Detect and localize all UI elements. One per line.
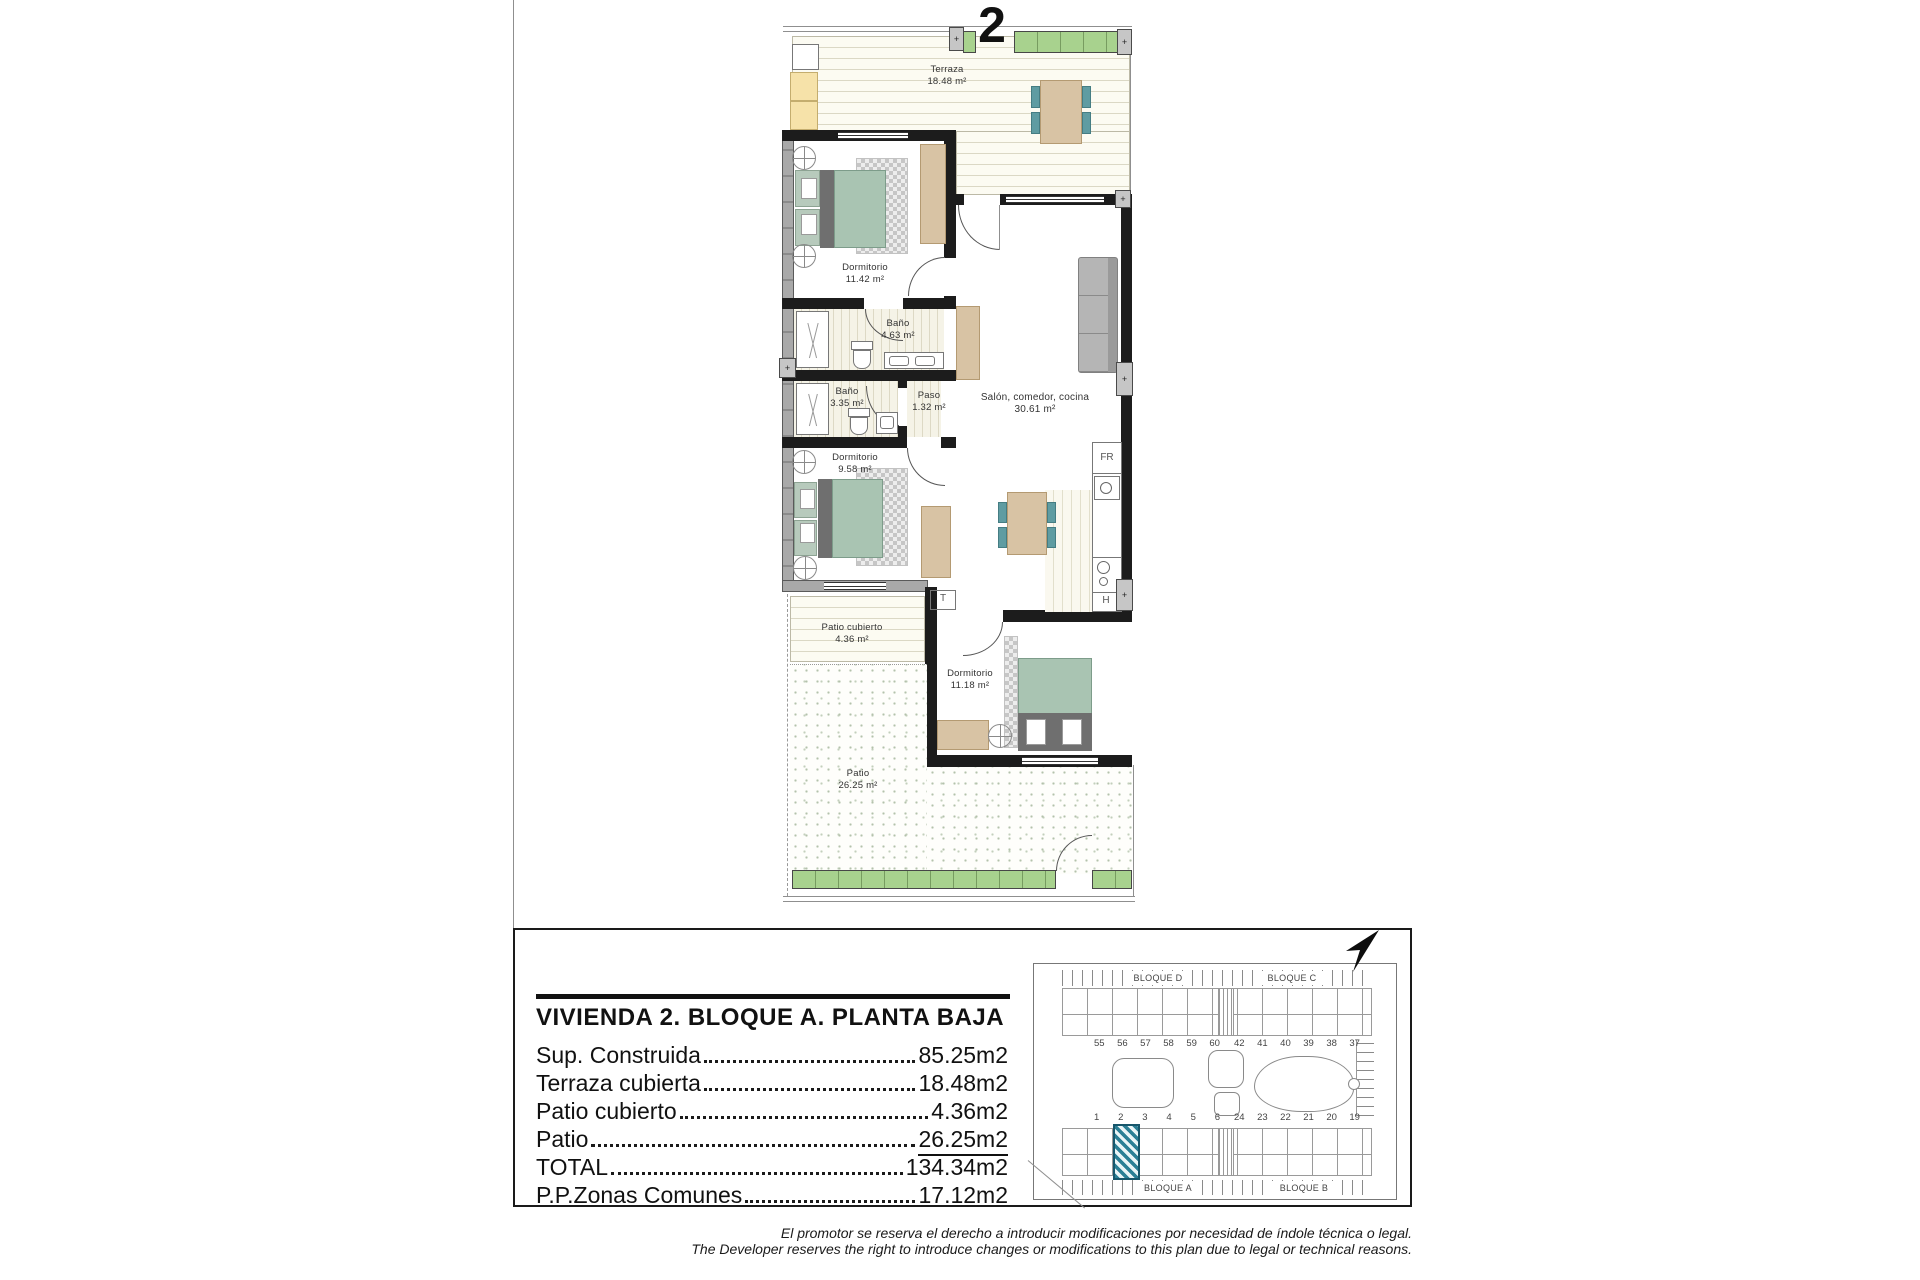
unit-number: 1: [1094, 1112, 1099, 1123]
stair-core: [1218, 1128, 1234, 1176]
block-label: BLOQUE D: [1126, 971, 1190, 985]
door-arc: [963, 622, 1003, 656]
room-name: Terraza: [901, 64, 993, 76]
unit-numbers: 1 2 3 4 5 6: [1094, 1112, 1220, 1123]
chair: [1047, 527, 1056, 548]
toilet: [850, 417, 868, 435]
room-name: Dormitorio: [925, 668, 1015, 680]
dot-leader: [680, 1116, 929, 1119]
sink-basin: [880, 416, 894, 429]
chair: [1082, 86, 1091, 108]
door-arc: [907, 448, 945, 486]
wall: [903, 298, 956, 309]
bed-headboard: [820, 170, 834, 248]
bed-headboard: [818, 479, 832, 558]
room-name: Salón, comedor, cocina: [949, 392, 1121, 404]
pillow: [800, 489, 815, 509]
spa: [1208, 1050, 1244, 1088]
unit-number: 42: [1234, 1038, 1245, 1049]
chair: [1031, 86, 1040, 108]
chair: [1047, 502, 1056, 523]
window: [1006, 196, 1104, 203]
patio-ground: [927, 767, 1132, 874]
room-area: 9.58 m²: [813, 464, 897, 476]
planter: [790, 101, 818, 130]
window: [824, 582, 886, 590]
plan-title: VIVIENDA 2. BLOQUE A. PLANTA BAJA: [536, 1004, 1014, 1032]
pillow: [1026, 719, 1046, 745]
door-arc: [908, 257, 945, 296]
unit-number: 6: [1215, 1112, 1220, 1123]
burner: [1097, 561, 1110, 574]
pool: [1254, 1056, 1354, 1112]
table-row: Terraza cubierta 18.48m2: [536, 1070, 1008, 1098]
room-label-bano1: Baño 4.63 m²: [863, 318, 933, 341]
dot-leader: [704, 1060, 916, 1063]
shower-glass-line: [809, 323, 819, 358]
unit-number: 5: [1191, 1112, 1196, 1123]
block-label: BLOQUE A: [1136, 1181, 1200, 1195]
wall: [941, 437, 956, 448]
row-label: P.P.Zonas Comunes: [536, 1182, 742, 1209]
row-label: Terraza cubierta: [536, 1070, 701, 1097]
wall-post: +: [779, 358, 796, 378]
row-value: 26.25m2: [918, 1126, 1008, 1156]
unit-numbers: 42 41 40 39 38 37: [1234, 1038, 1360, 1049]
unit-number: 4: [1166, 1112, 1171, 1123]
building-strip: [1062, 988, 1372, 1036]
wall-post: +: [1116, 362, 1133, 396]
room-area: 4.36 m²: [806, 634, 898, 646]
unit-number: 56: [1117, 1038, 1128, 1049]
unit-number: 37: [1349, 1038, 1360, 1049]
room-name: Baño: [812, 386, 882, 398]
room-label-dormitorio3: Dormitorio 11.18 m²: [925, 668, 1015, 691]
bed: [1018, 658, 1092, 714]
unit-numbers: 24 23 22 21 20 19: [1234, 1112, 1360, 1123]
wall: [898, 381, 907, 388]
wardrobe: [921, 506, 951, 578]
block-label: BLOQUE B: [1272, 1181, 1336, 1195]
room-area: 11.18 m²: [925, 680, 1015, 692]
wardrobe: [920, 144, 946, 244]
disclaimer-line-en: The Developer reserves the right to intr…: [592, 1242, 1412, 1258]
garage-row: [1062, 970, 1372, 986]
dot-leader: [704, 1088, 916, 1091]
wall: [782, 437, 905, 448]
door-leaf: [999, 205, 1000, 250]
unit-number: 20: [1326, 1112, 1337, 1123]
unit-number: 58: [1163, 1038, 1174, 1049]
row-value: 18.48m2: [918, 1070, 1008, 1097]
boundary-dashed-line: [787, 594, 788, 896]
row-label: Patio cubierto: [536, 1098, 677, 1125]
wall: [782, 298, 864, 309]
sink: [889, 356, 909, 366]
kitchen-sink-basin: [1100, 482, 1112, 494]
toilet-cistern: [848, 408, 870, 417]
unit-number: 2: [966, 0, 1018, 54]
north-arrow-icon: [1340, 928, 1382, 974]
room-area: 4.63 m²: [863, 330, 933, 342]
sink: [915, 356, 935, 366]
room-label-dormitorio1: Dormitorio 11.42 m²: [820, 262, 910, 285]
unit-number: 41: [1257, 1038, 1268, 1049]
mat: [937, 720, 989, 750]
unit-number: 39: [1303, 1038, 1314, 1049]
table-row: Patio 26.25m2: [536, 1126, 1008, 1154]
frame-left-line: [513, 0, 514, 928]
dot-leader: [611, 1172, 903, 1175]
unit-number: 57: [1140, 1038, 1151, 1049]
unit-number: 23: [1257, 1112, 1268, 1123]
pillow: [1062, 719, 1082, 745]
room-label-patio: Patio 26.25 m²: [818, 768, 898, 791]
chair: [998, 502, 1007, 523]
unit-number: 2: [1118, 1112, 1123, 1123]
unit-number: 3: [1142, 1112, 1147, 1123]
row-value: 17.12m2: [918, 1182, 1008, 1209]
chair: [1082, 112, 1091, 134]
ceiling-light-icon: [792, 146, 816, 170]
room-area: 18.48 m²: [901, 76, 993, 88]
disclaimer: El promotor se reserva el derecho a intr…: [592, 1226, 1412, 1257]
row-value: 134.34m2: [906, 1154, 1008, 1181]
pillow: [800, 523, 815, 543]
pillow: [801, 214, 817, 235]
toilet-cistern: [851, 341, 873, 350]
unit-number: 60: [1209, 1038, 1220, 1049]
row-value: 4.36m2: [931, 1098, 1008, 1125]
room-area: 11.42 m²: [820, 274, 910, 286]
ceiling-light-icon: [988, 724, 1012, 748]
dot-leader: [745, 1200, 915, 1203]
hedge: [1092, 870, 1132, 889]
row-label: Sup. Construida: [536, 1042, 701, 1069]
toilet: [853, 350, 871, 369]
bed: [832, 479, 883, 558]
room-name: Patio: [818, 768, 898, 780]
wardrobe: [956, 306, 980, 380]
dot-leader: [591, 1144, 915, 1147]
fridge-label: FR: [1092, 452, 1122, 463]
table-row: Patio cubierto 4.36m2: [536, 1098, 1008, 1126]
boundary-line: [783, 31, 953, 32]
row-label: Patio: [536, 1126, 588, 1153]
title-rule: [536, 994, 1010, 999]
floor-plan-page: 2 + + Terraza 18.48 m² + + + +: [0, 0, 1920, 1280]
unit-number: 21: [1303, 1112, 1314, 1123]
parking-row: [1356, 1040, 1374, 1116]
table-row: Sup. Construida 85.25m2: [536, 1042, 1008, 1070]
hob-label: H: [1092, 595, 1120, 606]
unit-number: 59: [1186, 1038, 1197, 1049]
planter: [790, 72, 818, 101]
room-name: Baño: [863, 318, 933, 330]
burner: [1099, 577, 1108, 586]
table-row: P.P.Zonas Comunes 17.12m2: [536, 1182, 1008, 1210]
sofa: [1078, 257, 1118, 373]
room-name: Dormitorio: [820, 262, 910, 274]
door-arc: [958, 205, 1000, 250]
table-row: TOTAL 134.34m2: [536, 1154, 1008, 1182]
room-name: Dormitorio: [813, 452, 897, 464]
room-area: 30.61 m²: [949, 404, 1121, 416]
shower-glass-line: [807, 323, 817, 358]
boundary-line: [1133, 765, 1134, 897]
unit-number: 40: [1280, 1038, 1291, 1049]
room-area: 3.35 m²: [812, 398, 882, 410]
room-label-salon: Salón, comedor, cocina 30.61 m²: [949, 392, 1121, 415]
unit-number: 24: [1234, 1112, 1245, 1123]
room-label-terraza: Terraza 18.48 m²: [901, 64, 993, 87]
unit-number: 55: [1094, 1038, 1105, 1049]
site-plan: BLOQUE D BLOQUE C 55 56 57 58 59 60 42 4…: [1033, 963, 1397, 1200]
terrace-dining-table: [1040, 80, 1082, 144]
pool: [1112, 1058, 1174, 1108]
boundary-line: [783, 896, 1135, 897]
row-label: TOTAL: [536, 1154, 608, 1181]
wall: [782, 370, 956, 381]
room-area: 26.25 m²: [818, 780, 898, 792]
pillow: [801, 178, 817, 199]
unit-number: 22: [1280, 1112, 1291, 1123]
terrace-window-box: [792, 44, 819, 70]
room-name: Patio cubierto: [806, 622, 898, 634]
hedge: [1014, 31, 1119, 53]
unit-number: 19: [1349, 1112, 1360, 1123]
wall: [944, 194, 964, 205]
highlighted-unit: [1113, 1124, 1140, 1180]
unit-numbers: 55 56 57 58 59 60: [1094, 1038, 1220, 1049]
wall-post: +: [1115, 190, 1131, 208]
shower: [796, 311, 829, 368]
wall: [1121, 194, 1132, 622]
boundary-line: [783, 901, 1135, 902]
block-label: BLOQUE C: [1260, 971, 1324, 985]
row-value: 85.25m2: [918, 1042, 1008, 1069]
pool-detail: [1348, 1078, 1360, 1090]
wall-post: +: [1117, 29, 1132, 55]
chair: [1031, 112, 1040, 134]
dining-table: [1007, 492, 1047, 555]
ceiling-light-icon: [792, 244, 816, 268]
chair: [998, 527, 1007, 548]
ceiling-light-icon: [793, 556, 817, 580]
stair-core: [1218, 988, 1234, 1036]
water-heater-label: T: [930, 593, 956, 604]
unit-number: 38: [1326, 1038, 1337, 1049]
wall-post: +: [949, 27, 964, 51]
bed: [834, 170, 886, 248]
building-strip: [1062, 1128, 1372, 1176]
disclaimer-line-es: El promotor se reserva el derecho a intr…: [592, 1226, 1412, 1242]
area-table: Sup. Construida 85.25m2 Terraza cubierta…: [536, 1042, 1008, 1210]
window: [838, 132, 908, 139]
room-label-patio-cubierto: Patio cubierto 4.36 m²: [806, 622, 898, 645]
terrace-edge-line: [1130, 31, 1131, 194]
hedge: [792, 870, 1056, 889]
window: [1022, 757, 1098, 765]
room-label-dormitorio2: Dormitorio 9.58 m²: [813, 452, 897, 475]
room-label-bano2: Baño 3.35 m²: [812, 386, 882, 409]
